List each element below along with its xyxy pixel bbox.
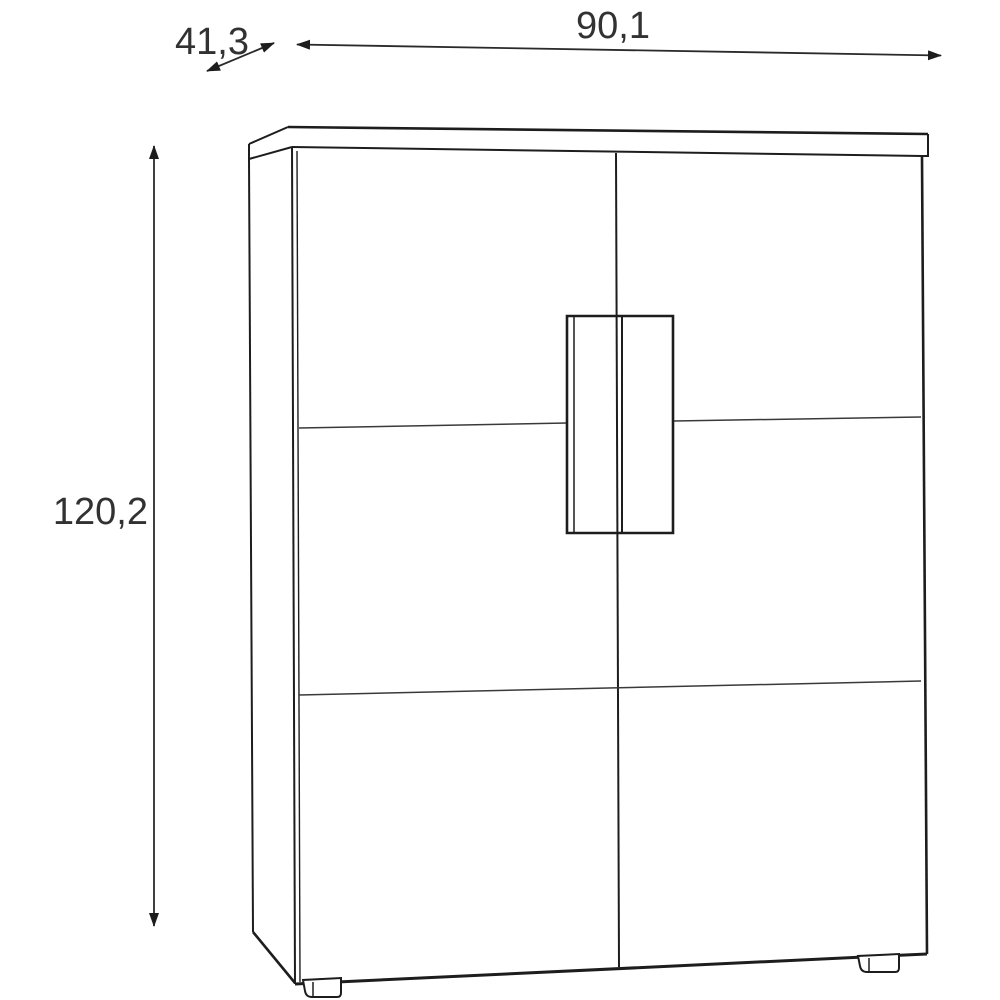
dimension-diagram-page: 90,1 41,3 120,2	[0, 0, 1000, 1000]
cabinet-drawing	[249, 127, 928, 997]
cabinet-foot-right	[858, 954, 899, 972]
height-dimension: 120,2	[53, 146, 154, 926]
cabinet-foot-left	[303, 978, 341, 997]
height-dimension-label: 120,2	[53, 491, 148, 533]
door-split-line	[616, 153, 619, 967]
width-dimension: 90,1	[297, 5, 941, 56]
depth-dimension-label: 41,3	[175, 21, 249, 63]
door-handles	[567, 316, 673, 533]
depth-dimension: 41,3	[175, 21, 274, 71]
door-seam-upper-left	[299, 423, 567, 428]
cabinet-dimension-diagram: 90,1 41,3 120,2	[0, 0, 1000, 1000]
cabinet-top-panel	[249, 127, 928, 159]
cabinet-side-panel	[249, 159, 295, 983]
door-seam-lower	[299, 681, 921, 695]
width-dimension-label: 90,1	[576, 5, 650, 47]
cabinet-doors	[292, 147, 927, 984]
door-seam-upper-right	[674, 417, 921, 421]
